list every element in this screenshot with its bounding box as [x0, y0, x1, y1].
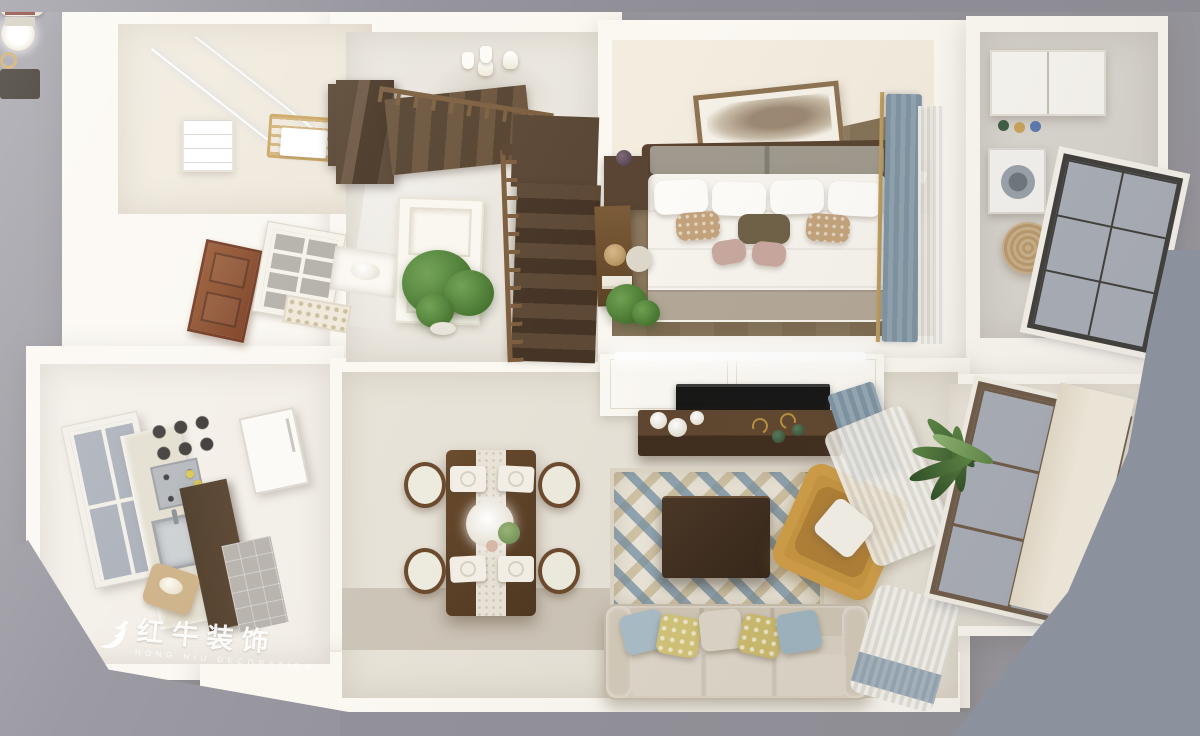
floorplan-3d-render: { "watermark": { "brand": "红牛装饰", "subti… — [0, 0, 1200, 736]
jar-decor — [998, 120, 1009, 131]
laundry-wall-cabinet — [990, 50, 1106, 116]
decor-plate — [690, 411, 704, 425]
bed-pillow — [711, 181, 766, 217]
decor-plate — [668, 418, 687, 437]
place-mat — [497, 465, 534, 493]
sofa-pillow-yellow — [655, 613, 703, 660]
gold-plate-decor — [0, 52, 17, 69]
accent-pillow — [675, 210, 721, 241]
bedroom-plant — [632, 300, 660, 326]
bread — [157, 575, 185, 598]
white-bowl — [349, 260, 381, 282]
green-bottle — [772, 430, 785, 443]
plate — [460, 471, 476, 487]
stair-landing — [511, 115, 599, 190]
white-towel — [280, 127, 328, 158]
floral-centerpiece-greens — [498, 522, 520, 544]
accent-pillow — [751, 240, 787, 267]
dining-chair — [404, 548, 446, 594]
bull-logo-icon — [95, 614, 132, 656]
decor-vase — [462, 52, 474, 69]
book-tray — [0, 69, 40, 99]
sheer-curtain — [918, 106, 944, 344]
decor-vase — [480, 46, 492, 63]
led-light-strip — [614, 352, 866, 361]
desk-chair — [626, 246, 652, 272]
throw-blanket — [648, 290, 886, 320]
dining-chair — [404, 462, 446, 508]
floral-centerpiece-blossom — [486, 540, 498, 552]
tv-console — [638, 410, 842, 456]
headboard — [650, 146, 884, 174]
coffee-table — [662, 496, 770, 578]
coral-decor — [0, 16, 36, 52]
wall-sconce-light — [503, 51, 518, 69]
fridge-handle — [286, 418, 296, 452]
sofa-seat-cushions — [632, 654, 846, 696]
staircase-lower-flight — [511, 183, 601, 364]
jar-decor — [1014, 122, 1025, 133]
newel-post — [502, 144, 513, 155]
plant-pot — [430, 322, 456, 335]
decor-plate — [650, 412, 667, 429]
plate — [508, 471, 525, 488]
wood-plate-decor — [604, 244, 626, 266]
washer-door — [1001, 165, 1035, 199]
lemon — [186, 470, 194, 478]
plate — [460, 561, 477, 578]
blue-curtain — [882, 94, 922, 343]
jar-decor — [1030, 121, 1041, 132]
book — [5, 6, 35, 15]
bed-pillow — [653, 179, 709, 216]
washing-machine — [988, 148, 1046, 214]
accent-pillow — [738, 214, 790, 244]
plate — [508, 561, 524, 577]
bed-pillow — [827, 181, 883, 218]
bed-pillow — [769, 179, 824, 215]
place-mat — [498, 556, 534, 582]
accent-pillow — [805, 212, 851, 243]
dining-chair — [538, 548, 580, 594]
nightstand-plant — [616, 150, 632, 166]
place-mat — [449, 555, 486, 583]
dining-chair — [538, 462, 580, 508]
display-niche — [329, 246, 400, 299]
bathroom-shelf-unit — [182, 118, 234, 172]
sofa-pillow-blue — [775, 609, 823, 656]
place-mat — [450, 466, 486, 492]
